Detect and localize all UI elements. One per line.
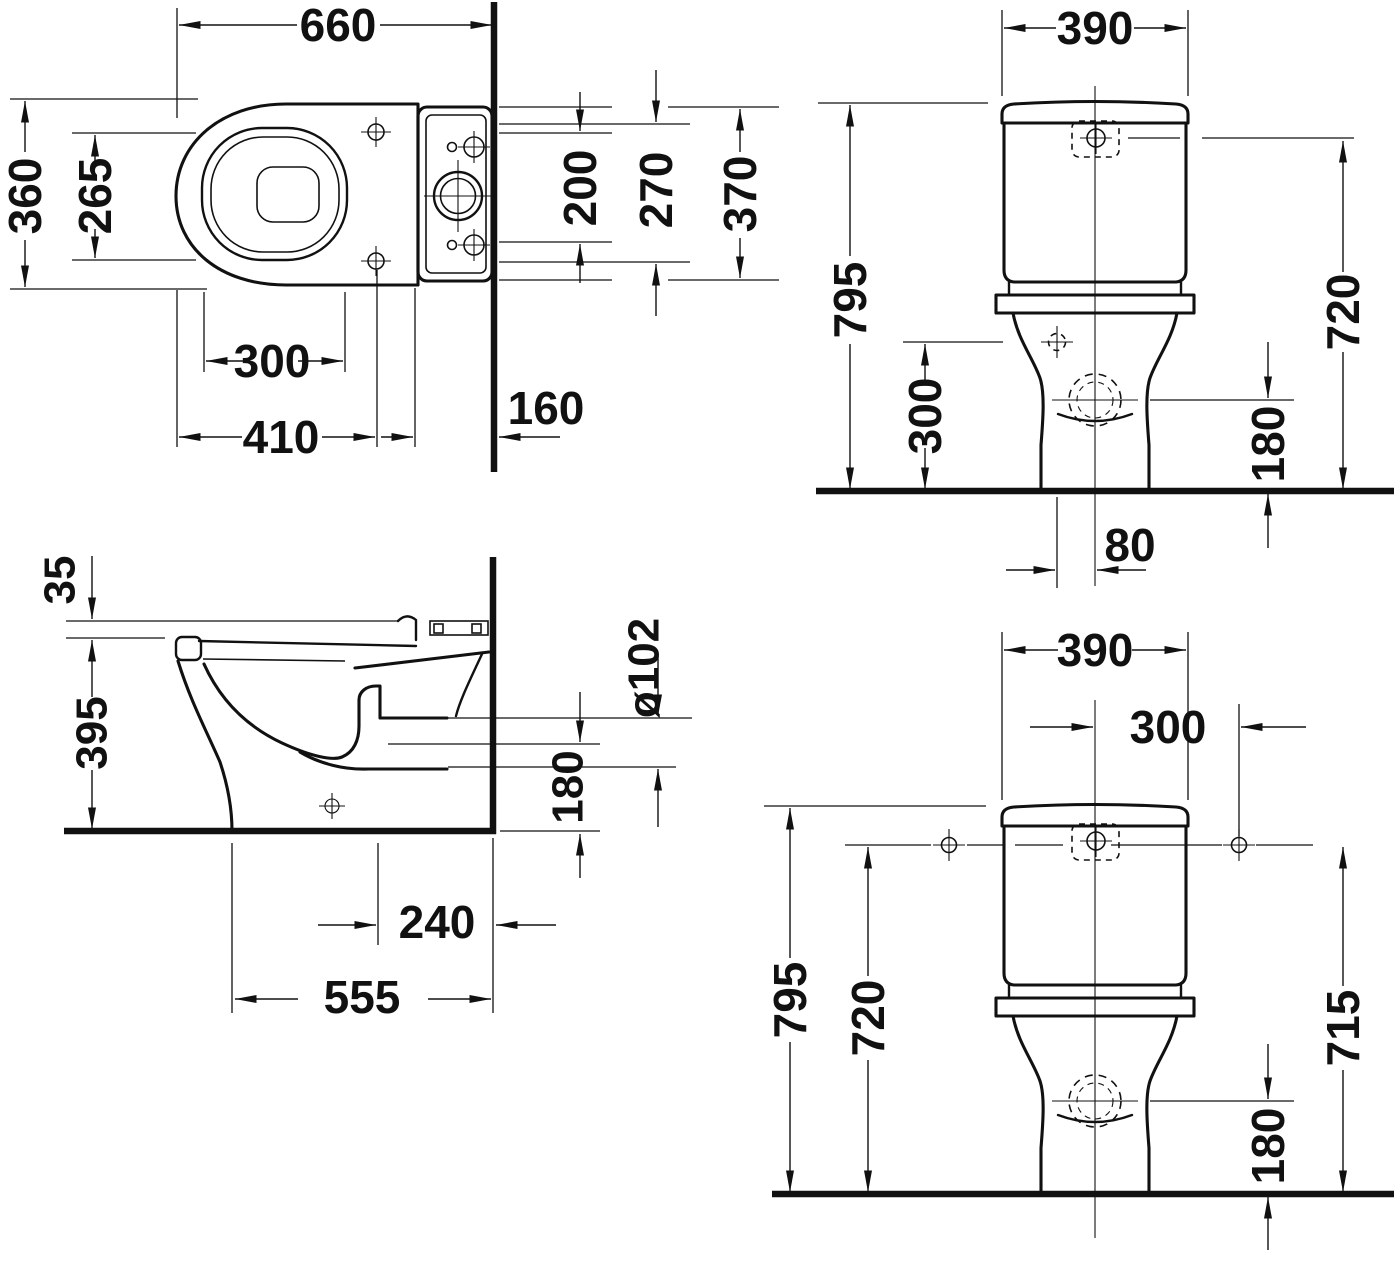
dim-side-outlet-diameter: ø102 bbox=[620, 618, 669, 718]
dim-plan-wall-offset: 160 bbox=[508, 382, 585, 434]
dim-frontupper-button-height: 720 bbox=[1317, 274, 1369, 351]
bowl-outline bbox=[176, 104, 418, 285]
plan-view: 660 360 265 300 410 160 200 270 bbox=[0, 0, 779, 472]
front-upper-dimensions: 390 795 300 720 180 80 bbox=[824, 2, 1369, 571]
wall-fixing-hole-left-icon bbox=[933, 829, 965, 861]
dim-plan-seat-hole-span: 265 bbox=[69, 158, 121, 235]
dim-frontlower-hole-to-center: 300 bbox=[1130, 701, 1207, 753]
pedestal-left bbox=[1013, 313, 1043, 490]
rim-outer bbox=[202, 128, 347, 260]
front-view-upper: 390 795 300 720 180 80 bbox=[816, 2, 1394, 588]
dim-frontlower-total-height: 795 bbox=[764, 962, 816, 1039]
pedestal-right bbox=[1147, 1016, 1177, 1193]
flush-button-icon bbox=[1072, 824, 1119, 860]
side-dimensions: 35 395 ø102 180 240 555 bbox=[36, 556, 669, 1023]
dim-plan-tank-width: 370 bbox=[714, 156, 766, 233]
dim-frontlower-tank-width: 390 bbox=[1057, 624, 1134, 676]
dim-plan-overall-width: 360 bbox=[0, 158, 51, 235]
pedestal-right bbox=[1147, 313, 1177, 490]
side-section-view: 35 395 ø102 180 240 555 bbox=[36, 556, 693, 1023]
seat-fixing-hole-icon bbox=[361, 117, 391, 276]
side-extension-lines bbox=[232, 718, 692, 1013]
dim-frontupper-outlet-offset: 80 bbox=[1104, 519, 1155, 571]
dim-frontupper-hole-height: 300 bbox=[899, 378, 951, 455]
water-area bbox=[257, 167, 319, 222]
dim-frontupper-total-height: 795 bbox=[824, 262, 876, 339]
pedestal-left bbox=[1013, 1016, 1043, 1193]
dim-plan-tank-inner-width: 270 bbox=[630, 152, 682, 229]
bowl-section bbox=[178, 652, 489, 831]
flush-button-icon bbox=[1072, 121, 1119, 157]
technical-drawing-page: 660 360 265 300 410 160 200 270 bbox=[0, 0, 1400, 1273]
dim-plan-tank-bolt-span: 200 bbox=[554, 150, 606, 227]
front-lower-dimensions: 390 300 795 720 715 180 bbox=[764, 624, 1369, 1250]
inlet-hole-icon bbox=[424, 160, 492, 232]
dim-plan-front-to-holes: 410 bbox=[243, 411, 320, 463]
dim-side-outlet-to-wall: 240 bbox=[399, 896, 476, 948]
dim-plan-rim-to-holes: 300 bbox=[234, 335, 311, 387]
dim-plan-overall-length: 660 bbox=[300, 0, 377, 51]
seat-and-hinge bbox=[176, 616, 488, 661]
dim-side-outlet-center-height: 180 bbox=[544, 750, 593, 823]
dim-frontupper-outlet-height: 180 bbox=[1242, 406, 1294, 483]
plan-dimensions: 660 360 265 300 410 160 200 270 bbox=[0, 0, 766, 463]
dim-frontlower-right-height: 715 bbox=[1317, 990, 1369, 1067]
dim-frontupper-tank-width: 390 bbox=[1057, 2, 1134, 54]
dim-frontlower-outlet-height: 180 bbox=[1242, 1108, 1294, 1185]
dim-side-rim-height: 395 bbox=[68, 696, 117, 769]
dim-frontlower-left-height: 720 bbox=[842, 980, 894, 1057]
front-upper-extension-lines bbox=[818, 10, 1354, 588]
dim-side-seat-step: 35 bbox=[36, 556, 85, 605]
dim-side-total-depth: 555 bbox=[324, 971, 401, 1023]
toilet-dimension-drawing: 660 360 265 300 410 160 200 270 bbox=[0, 0, 1400, 1273]
side-fixing-hole-icon bbox=[1041, 326, 1073, 358]
front-view-lower: 390 300 795 720 715 180 bbox=[764, 624, 1394, 1250]
